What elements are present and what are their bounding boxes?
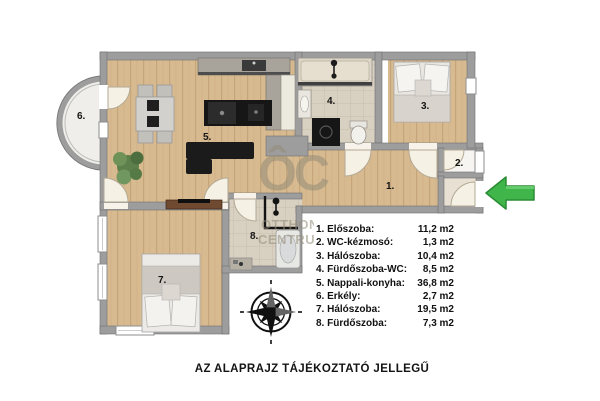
- room5-label: 5.: [203, 132, 212, 143]
- balcony-floor: [60, 79, 104, 167]
- room1-label: 1.: [386, 181, 395, 192]
- wall-room4-room3: [375, 52, 382, 143]
- dining-chair: [157, 131, 172, 143]
- room4-label: 4.: [327, 96, 336, 107]
- balcony-door-opening: [99, 85, 108, 109]
- washing-machine: [312, 118, 340, 146]
- legend-label: 8. Fürdőszoba:: [316, 317, 387, 330]
- room8-label: 8.: [250, 231, 259, 242]
- room7-label: 7.: [158, 275, 167, 286]
- table-setting: [147, 116, 159, 127]
- entrance-arrow-highlight: [506, 181, 534, 189]
- wall-kitchen-block: [266, 136, 308, 156]
- legend-area: 11,2 m2: [418, 223, 454, 236]
- shower-tap-room8: [273, 210, 279, 216]
- shower-head-room4: [331, 60, 337, 66]
- table-setting: [147, 100, 159, 111]
- legend-label: 1. Előszoba:: [316, 223, 374, 236]
- kitchen-faucet: [253, 62, 256, 65]
- legend-label: 3. Hálószoba:: [316, 250, 380, 263]
- legend-area: 1,3 m2: [423, 236, 454, 249]
- dining-chair: [138, 131, 153, 143]
- legend-area: 36,8 m2: [417, 277, 454, 290]
- sofa: [186, 142, 254, 159]
- tv: [178, 199, 210, 203]
- legend-area: 8,5 m2: [423, 263, 454, 276]
- legend-area: 10,4 m2: [417, 250, 454, 263]
- bathtub-front-edge: [298, 82, 372, 86]
- legend-row: 4. Fürdőszoba-WC: 8,5 m2: [316, 263, 454, 276]
- legend-row: 3. Hálószoba: 10,4 m2: [316, 250, 454, 263]
- shower-tap-room4: [331, 73, 336, 78]
- legend-row: 2. WC-kézmosó: 1,3 m2: [316, 236, 454, 249]
- room3-label: 3.: [421, 101, 430, 112]
- legend-row: 5. Nappali-konyha: 36,8 m2: [316, 277, 454, 290]
- window-room3: [466, 78, 476, 94]
- sink-accessory: [233, 260, 238, 264]
- legend-row: 8. Fürdőszoba: 7,3 m2: [316, 317, 454, 330]
- compass-rose-icon: [240, 280, 302, 344]
- bed-room7: [142, 254, 200, 332]
- sink-bowl-room4: [301, 96, 309, 112]
- toilet-bowl: [351, 126, 366, 144]
- legend-area: 7,3 m2: [423, 317, 454, 330]
- room7-door-opening: [104, 203, 128, 209]
- legend-area: 2,7 m2: [423, 290, 454, 303]
- room6-label: 6.: [77, 111, 86, 122]
- room2-label: 2.: [455, 158, 464, 169]
- wall-room7-right: [222, 196, 229, 334]
- wall-right-upper: [467, 52, 475, 148]
- legend-label: 2. WC-kézmosó:: [316, 236, 393, 249]
- dining-chair: [138, 85, 153, 97]
- legend-label: 5. Nappali-konyha:: [316, 277, 405, 290]
- legend-label: 7. Hálószoba:: [316, 303, 380, 316]
- legend-row: 6. Erkély: 2,7 m2: [316, 290, 454, 303]
- window-balcony-side: [99, 122, 108, 138]
- legend-area: 19,5 m2: [417, 303, 454, 316]
- floor-plan-drawing: 1. 2. 3. 4. 5. 6. 7. 8.: [0, 0, 600, 401]
- dining-chair: [157, 85, 172, 97]
- wall-vestibule-left: [438, 176, 444, 213]
- legend-label: 6. Erkély:: [316, 290, 360, 303]
- room3-door-opening: [409, 143, 437, 150]
- wall-bottom-right: [296, 206, 483, 213]
- room-legend: 1. Előszoba: 11,2 m2 2. WC-kézmosó: 1,3 …: [314, 220, 456, 333]
- sink-drain-room8: [239, 262, 243, 266]
- bed-room3: [394, 62, 450, 122]
- sofa-chaise: [186, 159, 212, 174]
- disclaimer-caption: AZ ALAPRAJZ TÁJÉKOZTATÓ JELLEGŰ: [100, 363, 524, 375]
- window-room2: [475, 151, 484, 173]
- legend-row: 1. Előszoba: 11,2 m2: [316, 223, 454, 236]
- floor-plan-page: 1. 2. 3. 4. 5. 6. 7. 8. ÔC: [0, 0, 600, 401]
- kitchen-cabinet-column: [281, 75, 295, 130]
- entrance-opening: [475, 181, 484, 207]
- island-sink-drain: [254, 110, 258, 114]
- entrance-arrow-icon: [486, 177, 534, 209]
- bathtub-room8-inner: [280, 235, 296, 263]
- kitchen-counter-edge: [198, 72, 290, 75]
- shower-head-room8: [273, 198, 280, 205]
- legend-label: 4. Fürdőszoba-WC:: [316, 263, 407, 276]
- legend-row: 7. Hálószoba: 19,5 m2: [316, 303, 454, 316]
- island-hob-knob: [220, 111, 224, 115]
- room8-door-opening: [234, 193, 256, 199]
